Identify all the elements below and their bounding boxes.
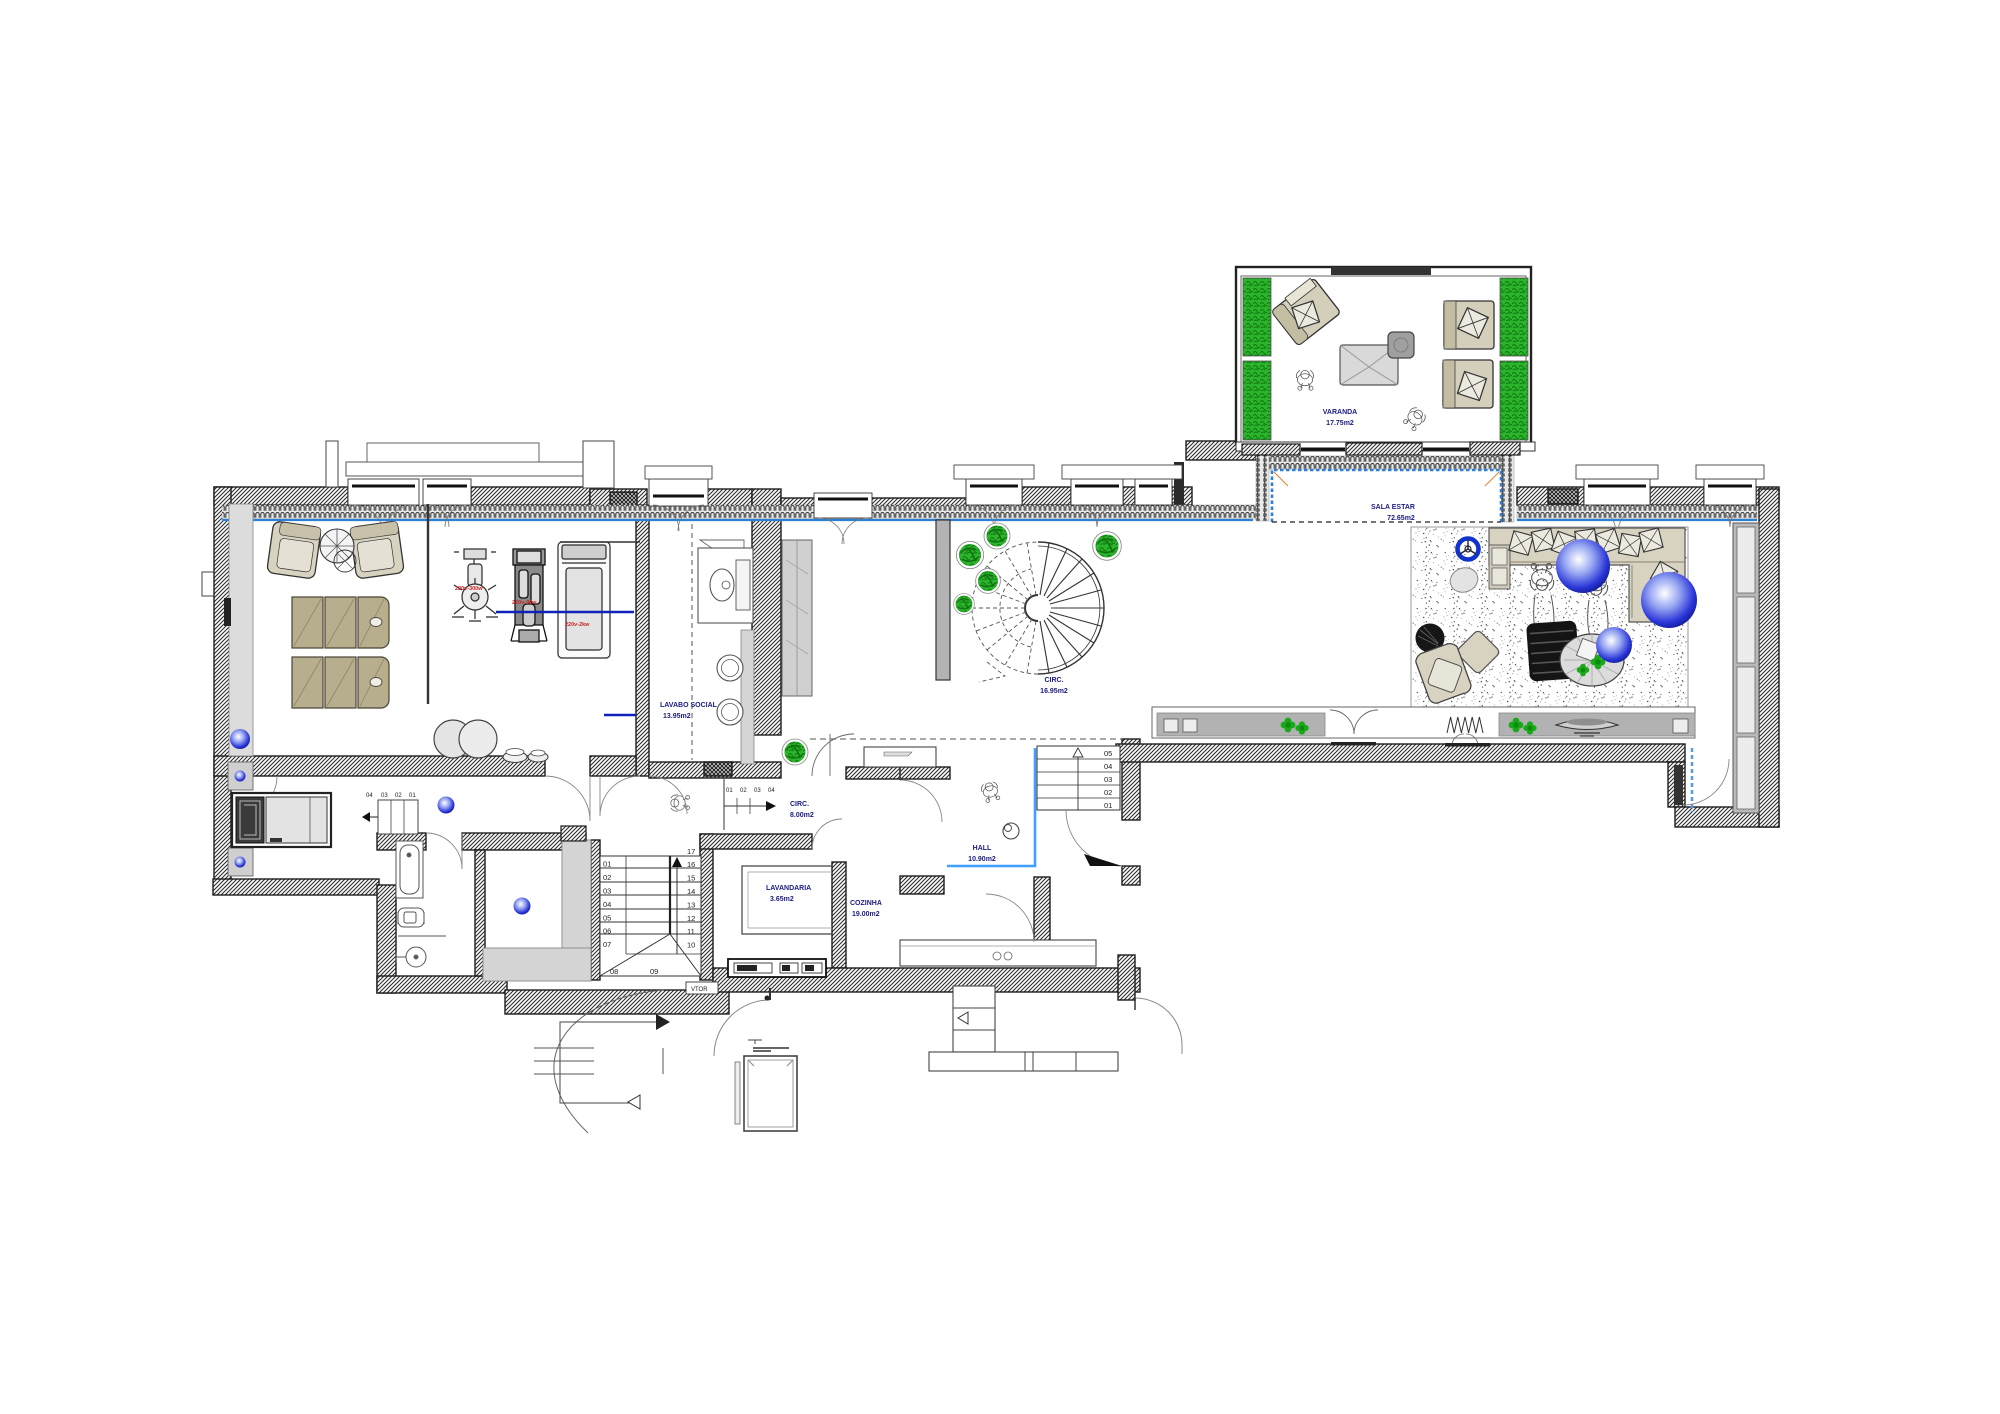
svg-text:LAVANDARIA: LAVANDARIA [766, 885, 811, 892]
svg-text:220v-2kw: 220v-2kw [565, 622, 590, 628]
svg-text:15: 15 [687, 874, 695, 883]
svg-text:05: 05 [1104, 749, 1112, 758]
svg-text:04: 04 [1104, 762, 1112, 771]
svg-text:02: 02 [1104, 788, 1112, 797]
svg-text:01: 01 [1104, 801, 1112, 810]
svg-text:VTOR: VTOR [691, 987, 708, 993]
svg-text:09: 09 [650, 967, 658, 976]
svg-text:12: 12 [687, 914, 695, 923]
svg-text:03: 03 [603, 887, 611, 896]
svg-text:01: 01 [603, 860, 611, 869]
svg-text:06: 06 [603, 927, 611, 936]
svg-text:19.00m2: 19.00m2 [852, 911, 880, 918]
svg-text:07: 07 [603, 940, 611, 949]
svg-text:13: 13 [687, 901, 695, 910]
svg-text:CIRC.: CIRC. [790, 801, 809, 808]
svg-text:02: 02 [740, 788, 747, 794]
svg-text:01: 01 [409, 793, 416, 799]
svg-text:05: 05 [603, 914, 611, 923]
svg-text:04: 04 [768, 788, 775, 794]
svg-text:03: 03 [754, 788, 761, 794]
svg-text:10.90m2: 10.90m2 [968, 856, 996, 863]
svg-text:08: 08 [610, 967, 618, 976]
svg-text:LAVABO SOCIAL: LAVABO SOCIAL [660, 702, 718, 709]
svg-text:3.65m2: 3.65m2 [770, 896, 794, 903]
svg-text:03: 03 [1104, 775, 1112, 784]
svg-text:04: 04 [603, 900, 611, 909]
svg-text:02: 02 [603, 873, 611, 882]
svg-text:17.75m2: 17.75m2 [1326, 420, 1354, 427]
svg-text:16.95m2: 16.95m2 [1040, 688, 1068, 695]
svg-text:8.00m2: 8.00m2 [790, 812, 814, 819]
svg-text:10: 10 [687, 941, 695, 950]
svg-text:SALA ESTAR: SALA ESTAR [1371, 504, 1415, 511]
svg-text:17: 17 [687, 847, 695, 856]
svg-text:03: 03 [381, 793, 388, 799]
svg-text:11: 11 [687, 927, 695, 936]
svg-text:VARANDA: VARANDA [1323, 409, 1357, 416]
svg-text:220v-300w: 220v-300w [455, 586, 483, 592]
svg-text:CIRC.: CIRC. [1044, 677, 1063, 684]
svg-text:13.95m2: 13.95m2 [663, 713, 691, 720]
svg-text:04: 04 [366, 793, 373, 799]
svg-text:14: 14 [687, 887, 695, 896]
svg-text:COZINHA: COZINHA [850, 900, 882, 907]
svg-text:16: 16 [687, 860, 695, 869]
svg-text:72.65m2: 72.65m2 [1387, 515, 1415, 522]
svg-text:02: 02 [395, 793, 402, 799]
svg-text:220v-90w: 220v-90w [512, 600, 537, 606]
svg-text:HALL: HALL [973, 845, 992, 852]
svg-text:01: 01 [726, 788, 733, 794]
